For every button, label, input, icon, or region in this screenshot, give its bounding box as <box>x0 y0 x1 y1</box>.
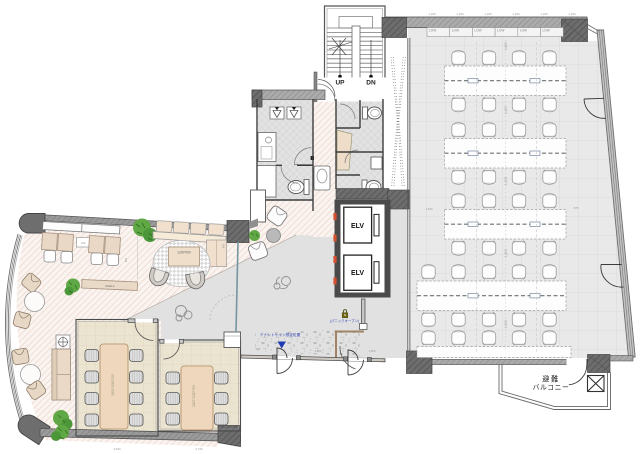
svg-text:600: 600 <box>222 243 226 248</box>
svg-text:1,600: 1,600 <box>504 249 508 258</box>
svg-text:LOW: LOW <box>497 29 504 33</box>
svg-text:1,600: 1,600 <box>504 177 508 186</box>
svg-text:600: 600 <box>81 241 86 245</box>
svg-text:1,810: 1,810 <box>426 207 433 211</box>
svg-text:ELV: ELV <box>351 270 364 277</box>
svg-text:900: 900 <box>256 347 261 351</box>
svg-text:1,230: 1,230 <box>457 12 464 16</box>
svg-text:(パニックオープン): (パニックオープン) <box>330 318 359 323</box>
svg-text:LOW: LOW <box>452 29 459 33</box>
svg-text:1,600: 1,600 <box>369 349 376 353</box>
svg-text:バルコニー: バルコニー <box>533 384 570 392</box>
svg-text:避難: 避難 <box>542 375 559 384</box>
svg-text:1,600: 1,600 <box>504 320 508 329</box>
svg-text:ELV: ELV <box>351 223 364 230</box>
svg-text:1,230: 1,230 <box>541 12 548 16</box>
svg-text:DN: DN <box>366 80 376 87</box>
svg-text:3200*1200*700: 3200*1200*700 <box>111 374 115 396</box>
svg-text:1,800: 1,800 <box>504 42 508 51</box>
svg-text:2400*1200*700: 2400*1200*700 <box>192 385 196 407</box>
svg-text:1,230: 1,230 <box>569 12 576 16</box>
svg-text:1,600: 1,600 <box>315 349 322 353</box>
svg-text:LOW: LOW <box>429 29 436 33</box>
svg-text:875: 875 <box>574 206 579 210</box>
svg-text:LOW: LOW <box>543 29 550 33</box>
svg-text:1200*600: 1200*600 <box>177 251 191 255</box>
svg-text:1,230: 1,230 <box>485 12 492 16</box>
svg-text:1,600: 1,600 <box>504 106 508 115</box>
svg-text:テナントサイン想定位置: テナントサイン想定位置 <box>260 332 301 337</box>
svg-text:SHELF: SHELF <box>105 284 115 288</box>
svg-text:2,740: 2,740 <box>196 447 203 451</box>
svg-text:UP: UP <box>335 80 345 87</box>
svg-text:900: 900 <box>124 257 128 262</box>
svg-text:LOW: LOW <box>520 29 527 33</box>
svg-text:LOW: LOW <box>474 29 481 33</box>
svg-text:3,640: 3,640 <box>114 447 121 451</box>
svg-text:1,230: 1,230 <box>513 12 520 16</box>
svg-text:1,230: 1,230 <box>429 12 436 16</box>
